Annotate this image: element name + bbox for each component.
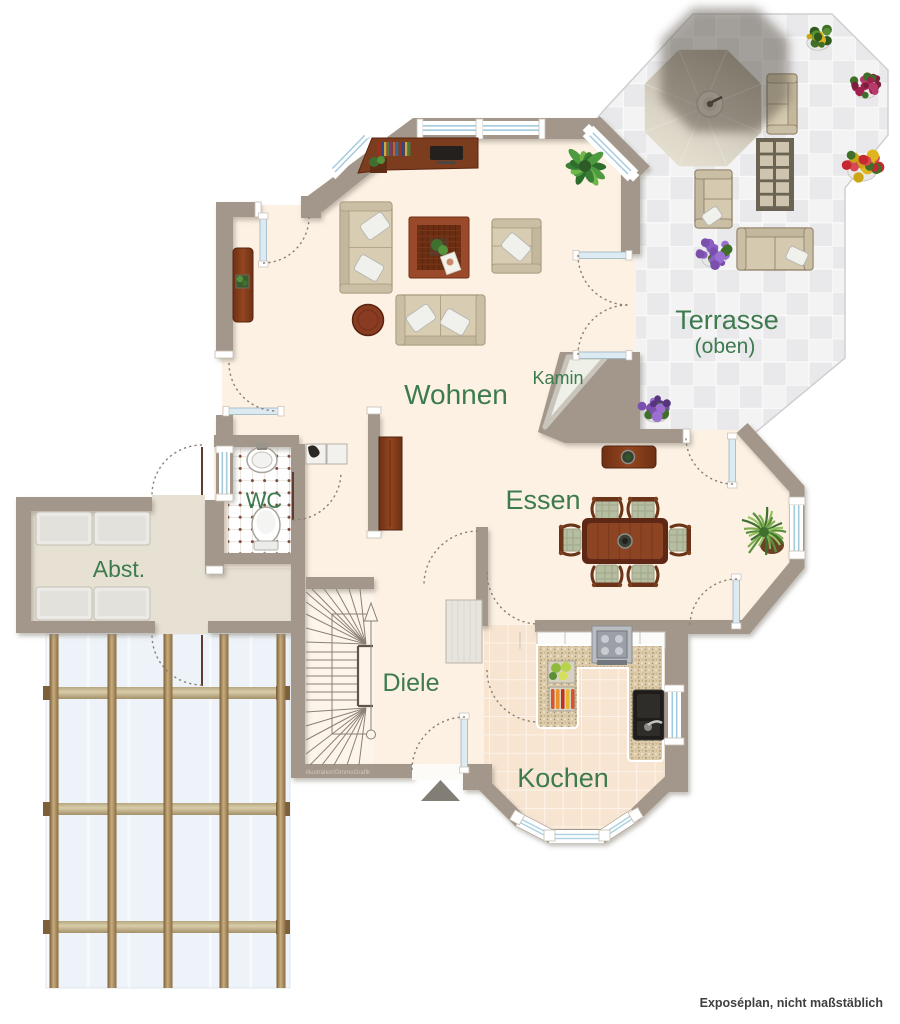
svg-text:illustration©immoGrafik: illustration©immoGrafik	[306, 769, 371, 776]
svg-text:Terrasse: Terrasse	[675, 305, 779, 335]
svg-text:Essen: Essen	[505, 485, 580, 515]
svg-text:WC: WC	[246, 488, 283, 513]
svg-text:Kamin: Kamin	[532, 368, 583, 388]
svg-text:Abst.: Abst.	[93, 556, 145, 582]
svg-text:Kochen: Kochen	[517, 763, 609, 793]
svg-text:(oben): (oben)	[695, 335, 756, 358]
svg-text:Exposéplan, nicht maßstäblich: Exposéplan, nicht maßstäblich	[700, 996, 883, 1010]
svg-text:Diele: Diele	[383, 669, 440, 697]
svg-text:Wohnen: Wohnen	[404, 379, 508, 410]
